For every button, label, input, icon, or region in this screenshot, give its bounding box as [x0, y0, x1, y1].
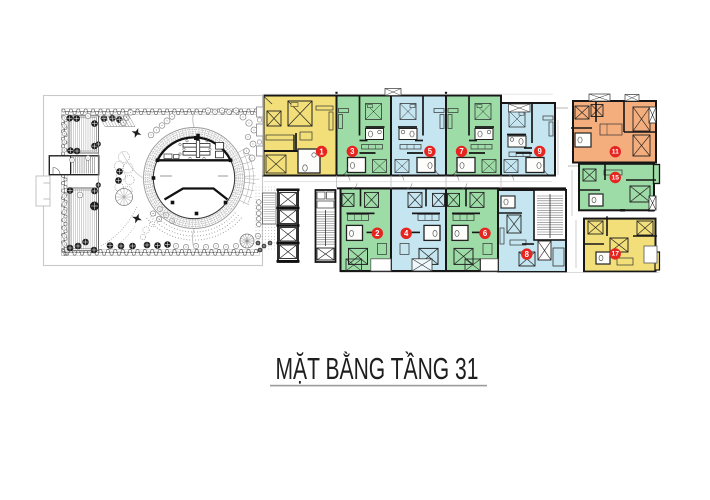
svg-text:3: 3: [350, 147, 355, 156]
svg-text:9: 9: [538, 147, 543, 156]
svg-text:6: 6: [483, 229, 488, 238]
svg-text:8: 8: [525, 250, 530, 259]
svg-text:2: 2: [375, 229, 380, 238]
svg-text:17: 17: [611, 251, 619, 258]
svg-text:15: 15: [612, 174, 620, 181]
svg-text:MẶT BẰNG TẦNG 31: MẶT BẰNG TẦNG 31: [276, 351, 479, 386]
svg-text:4: 4: [404, 229, 409, 238]
svg-text:5: 5: [428, 147, 433, 156]
svg-text:11: 11: [612, 149, 619, 156]
svg-text:1: 1: [319, 147, 324, 156]
svg-text:7: 7: [459, 147, 463, 156]
